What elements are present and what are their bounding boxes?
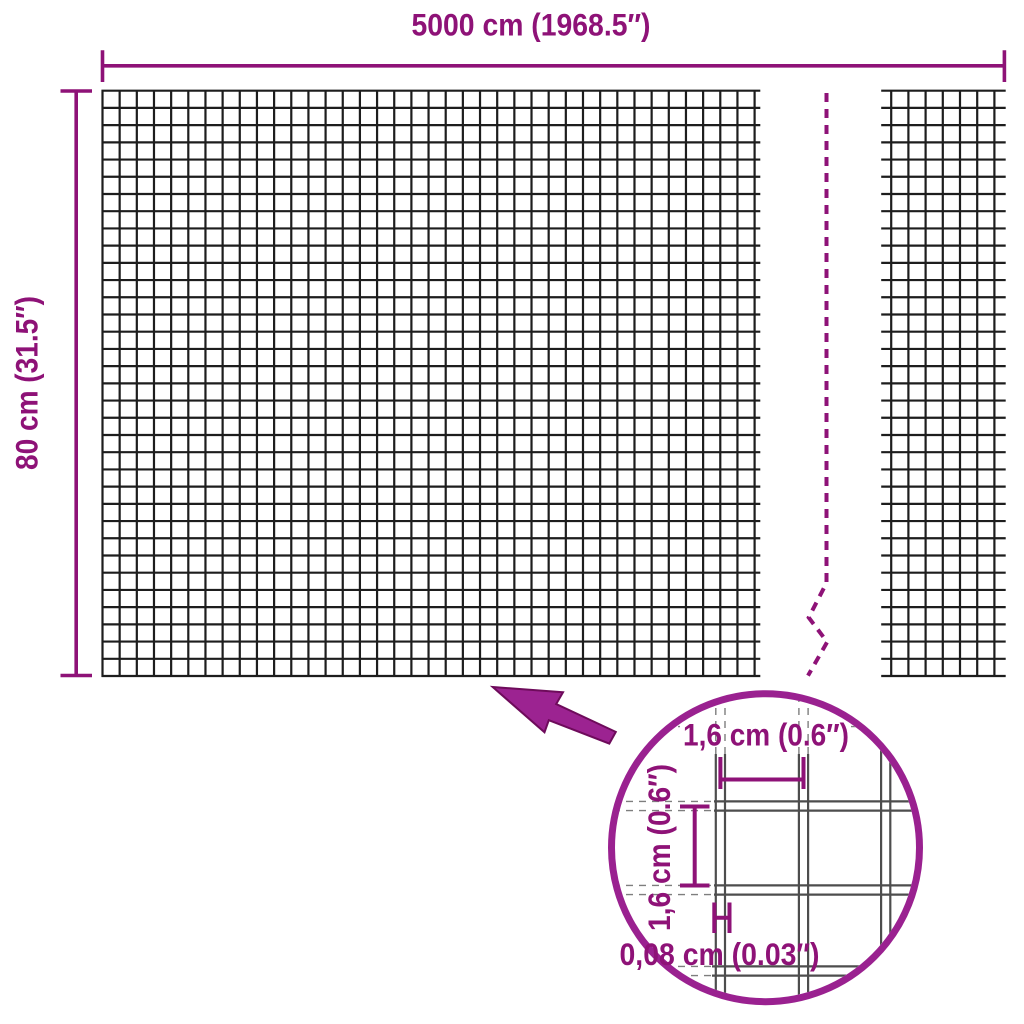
svg-text:1,6 cm (0.6″): 1,6 cm (0.6″) <box>683 717 849 753</box>
svg-text:5000 cm (1968.5″): 5000 cm (1968.5″) <box>412 7 651 43</box>
svg-text:1,6 cm (0.6″): 1,6 cm (0.6″) <box>641 764 677 931</box>
svg-text:80 cm (31.5″): 80 cm (31.5″) <box>9 296 45 470</box>
svg-text:0,08 cm (0.03″): 0,08 cm (0.03″) <box>620 936 820 972</box>
